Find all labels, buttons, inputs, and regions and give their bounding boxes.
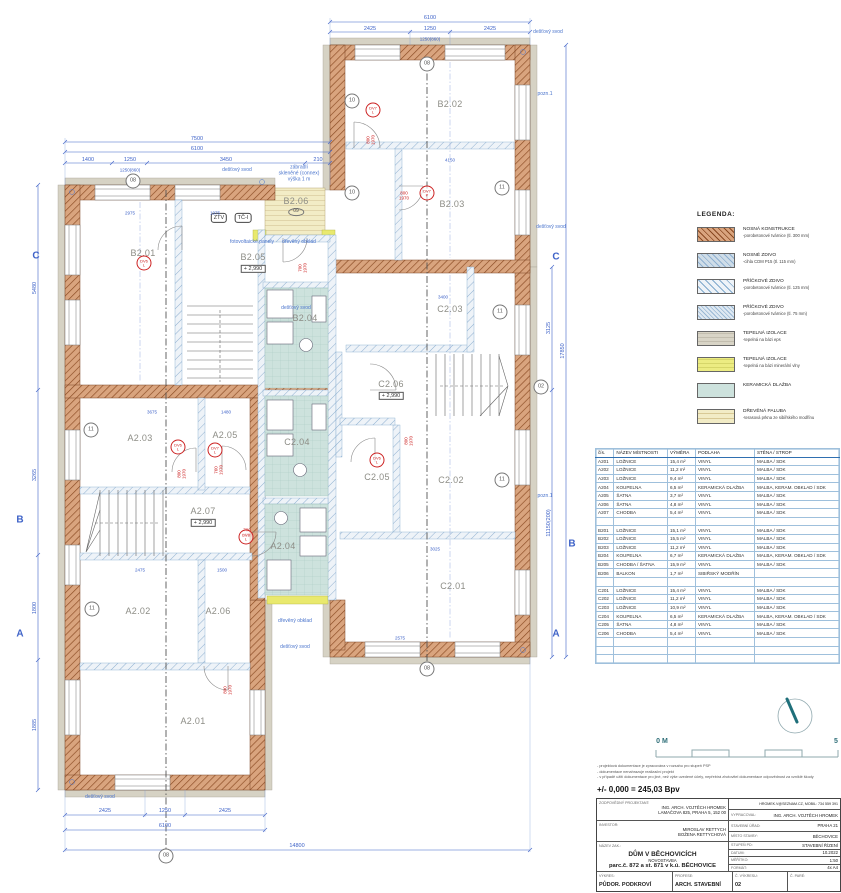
table-row: A204KOUPELNA6,5 m²KERAMICKÁ DLAŽBAMALBA,…: [596, 483, 840, 492]
legend-item-text: PŘÍČKOVÉ ZDIVO-porobetonové tvárnice (tl…: [743, 305, 807, 316]
title-block-date: DATUM: 10.2022: [729, 850, 840, 858]
table-row: B203LOŽNICE11,2 m²VINYLMALBA / SDK: [596, 543, 840, 552]
drawing-notes: - projektová dokumentace je zpracována v…: [597, 764, 841, 781]
floor-plan-drawing: [0, 0, 841, 893]
table-row: B204KOUPELNA6,7 m²KERAMICKÁ DLAŽBAMALBA,…: [596, 552, 840, 561]
legend-item: TEPELNÁ IZOLACE-tepelná na bázi mineráln…: [697, 357, 839, 372]
legend-item-text: DŘEVĚNÁ PALUBA-terasová prkna ze sibiřsk…: [743, 409, 814, 420]
legend-item: DŘEVĚNÁ PALUBA-terasová prkna ze sibiřsk…: [697, 409, 839, 424]
table-row: A201LOŽNICE15,4 m²VINYLMALBA / SDK: [596, 457, 840, 466]
legend-item-text: TEPELNÁ IZOLACE-tepelná na bázi mineráln…: [743, 357, 800, 368]
partition75-swatch: [697, 305, 735, 320]
table-row: A207CHODBA5,4 m²VINYLMALBA / SDK: [596, 509, 840, 518]
title-block-office: STAVEBNÍ ÚŘAD: PRAHA 21: [729, 821, 840, 832]
table-row: C204KOUPELNA6,5 m²KERAMICKÁ DLAŽBAMALBA,…: [596, 612, 840, 621]
partition125-swatch: [697, 279, 735, 294]
table-row: B201LOŽNICE15,1 m²VINYLMALBA / SDK: [596, 526, 840, 535]
legend-item-text: KERAMICKÁ DLAŽBA: [743, 383, 791, 388]
legend-item-text: NOSNÉ ZDIVO-cihla CDM P15 (tl. 115 mm): [743, 253, 796, 264]
room-table-body: čís.NÁZEV MÍSTNOSTIVÝMĚRAPODLAHASTĚNA / …: [596, 449, 840, 664]
masonry-swatch: [697, 253, 735, 268]
legend: LEGENDA: NOSNÁ KONSTRUKCE-porobetonové t…: [697, 211, 839, 435]
room-table: čís.NÁZEV MÍSTNOSTIVÝMĚRAPODLAHASTĚNA / …: [595, 448, 840, 664]
legend-item: KERAMICKÁ DLAŽBA: [697, 383, 839, 398]
table-row: B202LOŽNICE15,5 m²VINYLMALBA / SDK: [596, 534, 840, 543]
title-block-place: MÍSTO STAVBY: BĚCHOVICE: [729, 832, 840, 842]
title-block-author: VYPRACOVAL: ING. ARCH. VOJTĚCH HROMEK: [729, 810, 840, 820]
compass: [778, 699, 812, 733]
architectural-drawing-page: { "legend": { "title": "LEGENDA:", "item…: [0, 0, 841, 893]
title-block-format: FORMÁT: 4x A4: [729, 865, 840, 872]
table-row: C205ŠATNA4,8 m²VINYLMALBA / SDK: [596, 620, 840, 629]
title-block-number: Č. VÝKRESU: 02: [733, 872, 788, 891]
loadbearing-swatch: [697, 227, 735, 242]
table-row: A203LOŽNICE9,4 m²VINYLMALBA / SDK: [596, 474, 840, 483]
title-block-stage: STUPEŇ PD: STAVEBNÍ ŘÍZENÍ: [729, 842, 840, 850]
scale-bar: [656, 750, 838, 757]
table-row: [596, 638, 840, 647]
title-block-investor: INVESTOR: MIROSLAV RETTYCH BOŽENA RETTYC…: [597, 821, 729, 841]
elevation-datum: +/- 0,000 = 245,03 Bpv: [597, 785, 680, 794]
table-row: [596, 517, 840, 526]
title-block-drawing: VÝKRES: PŮDOR. PODKROVÍ: [597, 872, 673, 891]
table-row: A206ŠATNA4,8 m²VINYLMALBA / SDK: [596, 500, 840, 509]
table-row: C201LOŽNICE15,4 m²VINYLMALBA / SDK: [596, 586, 840, 595]
title-block-scale: MĚŘÍTKO: 1:50: [729, 857, 840, 865]
note-line: - v případě užití dokumentace pro jiné, …: [597, 775, 841, 781]
legend-item-text: NOSNÁ KONSTRUKCE-porobetonové tvárnice (…: [743, 227, 809, 238]
table-row: [596, 577, 840, 586]
title-block-profession: PROFESE: ARCH. STAVEBNÍ: [673, 872, 733, 891]
table-row: A202LOŽNICE11,2 m²VINYLMALBA / SDK: [596, 466, 840, 475]
legend-item-text: TEPELNÁ IZOLACE-tepelná na bázi eps: [743, 331, 787, 342]
title-block-copy: Č. PARÉ:: [788, 872, 840, 891]
title-block-contact: HROMEK.V@SEZNAM.CZ, MOBIL: 734 559 391: [729, 799, 840, 810]
table-row: [596, 655, 840, 664]
table-row: [596, 646, 840, 655]
legend-item: PŘÍČKOVÉ ZDIVO-porobetonové tvárnice (tl…: [697, 279, 839, 294]
ceramic-swatch: [697, 383, 735, 398]
legend-item: NOSNÁ KONSTRUKCE-porobetonové tvárnice (…: [697, 227, 839, 242]
eps-swatch: [697, 331, 735, 346]
title-block: ZODPOVĚDNÝ PROJEKTANT: ING. ARCH. VOJTĚC…: [596, 798, 841, 892]
table-row: B205CHODBA / ŠATNA15,9 m²VINYLMALBA / SD…: [596, 560, 840, 569]
legend-item: NOSNÉ ZDIVO-cihla CDM P15 (tl. 115 mm): [697, 253, 839, 268]
title-block-designer: ZODPOVĚDNÝ PROJEKTANT: ING. ARCH. VOJTĚC…: [597, 799, 729, 820]
table-row: A205ŠATNA3,7 m²VINYLMALBA / SDK: [596, 491, 840, 500]
legend-item: PŘÍČKOVÉ ZDIVO-porobetonové tvárnice (tl…: [697, 305, 839, 320]
legend-items: NOSNÁ KONSTRUKCE-porobetonové tvárnice (…: [697, 227, 839, 424]
table-row: C203LOŽNICE10,9 m²VINYLMALBA / SDK: [596, 603, 840, 612]
title-block-project: NÁZEV ZAK.: DŮM V BĚCHOVICÍCH NOVOSTAVBA…: [597, 842, 729, 871]
table-row: B206BALKON1,7 m²SIBIŘSKÝ MODŘÍN: [596, 569, 840, 578]
table-header-row: čís.NÁZEV MÍSTNOSTIVÝMĚRAPODLAHASTĚNA / …: [596, 449, 840, 458]
mineral-swatch: [697, 357, 735, 372]
table-row: C206CHODBA5,4 m²VINYLMALBA / SDK: [596, 629, 840, 638]
legend-item: TEPELNÁ IZOLACE-tepelná na bázi eps: [697, 331, 839, 346]
legend-item-text: PŘÍČKOVÉ ZDIVO-porobetonové tvárnice (tl…: [743, 279, 809, 290]
legend-title: LEGENDA:: [697, 211, 839, 218]
wood-swatch: [697, 409, 735, 424]
table-row: C202LOŽNICE11,2 m²VINYLMALBA / SDK: [596, 595, 840, 604]
